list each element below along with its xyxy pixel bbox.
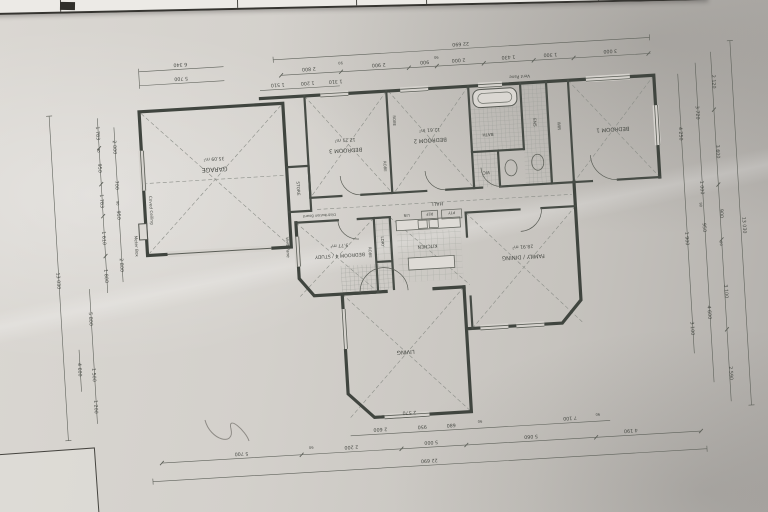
garage-door-opening (167, 245, 271, 257)
hall-centerline (317, 194, 572, 209)
dim-label: 950 (115, 210, 122, 219)
room-label-bedroom3: BEDROOM 3 (329, 146, 363, 154)
room-label-living: LIVING (397, 348, 415, 355)
window (138, 151, 146, 191)
wc-tiles (472, 151, 500, 188)
room-label-family: FAMILY / DINING (502, 252, 545, 261)
dim-label: 7 100 (563, 414, 577, 421)
dim-label: 1 430 (501, 53, 515, 60)
dim-label: 5 700 (234, 450, 248, 457)
dim-label: 2 600 (373, 426, 387, 433)
dim-label: 1 783 (94, 126, 101, 140)
toilet (505, 160, 518, 177)
dim-label: 4 600 (76, 363, 83, 377)
door-arc (519, 208, 542, 231)
dim-label: 1 610 (100, 231, 107, 245)
pen-squiggle (205, 420, 249, 441)
room-label-wir: WIR (556, 122, 561, 131)
dim-label: 950 (417, 423, 426, 430)
dim-label: 4 190 (624, 427, 638, 434)
window (653, 105, 661, 145)
window (320, 90, 348, 98)
dim-label: 4 600 (706, 305, 713, 319)
dim-tick-label: 90 (337, 61, 343, 65)
room-area-bedroom4: 9.77 m² (330, 242, 348, 249)
dim-top-total: 22 690 (452, 40, 469, 47)
room-area-garage: 35.09 m² (203, 155, 224, 162)
dim-label: 2 800 (118, 258, 125, 272)
door-arc (590, 154, 617, 181)
dim-label: 1 500 (90, 368, 97, 382)
dim-label: 5 700 (174, 75, 188, 82)
dim-tick-label: 90 (308, 445, 314, 449)
dim-tick-label: 90 (433, 55, 439, 59)
room-label-bedroom1: BEDROOM 1 (596, 125, 630, 133)
floor-plan-svg: 35.09 m² GARAGE 12.21 m² BEDROOM 3 12.61… (0, 0, 768, 512)
meter-box-note: Meter Box (133, 235, 139, 257)
dim-label: 3 100 (688, 321, 695, 335)
dim-right-total: 13 030 (740, 217, 747, 234)
dim-label: 700 (113, 181, 120, 190)
dim-label: 900 (420, 59, 429, 66)
window (294, 237, 302, 267)
dim-label: 2 000 (111, 140, 118, 154)
dim-label: 3 100 (722, 284, 729, 298)
dim-label: 5 800 (87, 312, 94, 326)
room-label-bedroom4: BEDROOM 4 / STUDY (315, 251, 365, 260)
coved-ceiling-note: Coved Ceiling (148, 196, 155, 225)
room-area-bedroom3: 12.21 m² (334, 136, 355, 143)
window (340, 309, 348, 349)
dim-label: 1 900 (683, 232, 690, 246)
dim-label: 4 250 (677, 127, 684, 141)
dim-label: 2 570 (402, 409, 416, 416)
room-area-bedroom2: 12.61 m² (419, 126, 440, 133)
room-label-hall: HALL (430, 200, 443, 207)
dim-label: 1 300 (543, 51, 557, 58)
dim-label: 1 800 (102, 269, 109, 283)
dim-tick-label: 90 (477, 419, 483, 423)
kitchen-island (408, 255, 455, 270)
dim-tick-label: 90 (595, 412, 601, 416)
dim-label: 2 000 (451, 56, 465, 63)
dim-label: 1 783 (98, 194, 105, 208)
room-label-wc: WC (483, 170, 490, 175)
room-area-family: 28.91 m² (512, 243, 533, 250)
dim-label: 1 310 (329, 78, 343, 85)
room-label-pty: PTY (447, 210, 455, 215)
dim-label: 3 000 (603, 47, 617, 54)
room-label-ldry: LDRY (380, 236, 386, 247)
dim-label: 1 510 (271, 81, 285, 88)
room-label-kitchen: KITCHEN (417, 242, 437, 249)
room-label-garage: GARAGE (201, 165, 227, 174)
dim-label: 2 200 (344, 443, 358, 450)
door-arc (340, 175, 361, 196)
diagonal (466, 206, 583, 328)
diagonal (304, 91, 392, 198)
room-label-store: STORE (295, 181, 301, 196)
plan-group: 35.09 m² GARAGE 12.21 m² BEDROOM 3 12.61… (42, 24, 760, 489)
room-label-robe: ROBE (367, 247, 373, 259)
dim-tick-label: 90 (96, 148, 100, 154)
room-label-bath: BATH (482, 132, 493, 138)
dim-left-total: 13 030 (54, 272, 61, 289)
dim-label: 900 (718, 209, 725, 218)
dim-tick-label: 90 (115, 201, 119, 207)
vent-pane-note: Vent Pane (285, 237, 291, 259)
window (478, 81, 502, 88)
meter-box (139, 224, 148, 240)
room-label-ens: ENS (532, 118, 538, 127)
dim-label: 6 340 (173, 61, 187, 68)
dim-label: 950 (701, 223, 708, 232)
area-table: 2 & 3 B AREA: AREA: AREA: (0, 447, 101, 512)
room-label-robe: ROBE (382, 161, 388, 173)
dim-label: 2 590 (727, 366, 734, 380)
dim-label: 680 (446, 422, 455, 429)
bathtub (472, 87, 517, 108)
dim-tick-label: 90 (719, 241, 723, 247)
room-label-ref: REF (426, 212, 434, 217)
window (480, 323, 508, 331)
dim-label: 2 900 (372, 61, 386, 68)
bath-tiles (469, 105, 524, 152)
vent-pane-note: Vent Pane (509, 74, 531, 80)
window (586, 74, 630, 83)
room-label-bedroom2: BEDROOM 2 (413, 136, 447, 144)
dim-label: 3 720 (694, 106, 701, 120)
dim-label: 5 060 (524, 433, 538, 440)
dim-bottom-total: 22 690 (421, 457, 438, 464)
dim-label: 2 800 (302, 65, 316, 72)
dim-label: 1 200 (301, 79, 315, 86)
diagonal (139, 105, 291, 253)
dim-label: 1 200 (92, 400, 99, 414)
dim-label: 1 000 (698, 181, 705, 195)
window (400, 86, 428, 94)
dim-label: 3 600 (714, 145, 721, 159)
dim-label: 2 120 (710, 75, 717, 89)
dim-label: 5 000 (424, 439, 438, 446)
dim-line (727, 40, 755, 405)
photographed-floor-plan-page: 35.09 m² GARAGE 12.21 m² BEDROOM 3 12.61… (0, 0, 768, 512)
dim-tick-label: 90 (698, 202, 702, 208)
room-label-robe: ROBE (392, 115, 398, 127)
door-arc (425, 170, 446, 191)
distribution-board-note: Distribution Board (303, 212, 336, 218)
room-label-lin: LIN (403, 213, 410, 218)
dim-label: 950 (96, 164, 103, 173)
window (516, 321, 544, 329)
